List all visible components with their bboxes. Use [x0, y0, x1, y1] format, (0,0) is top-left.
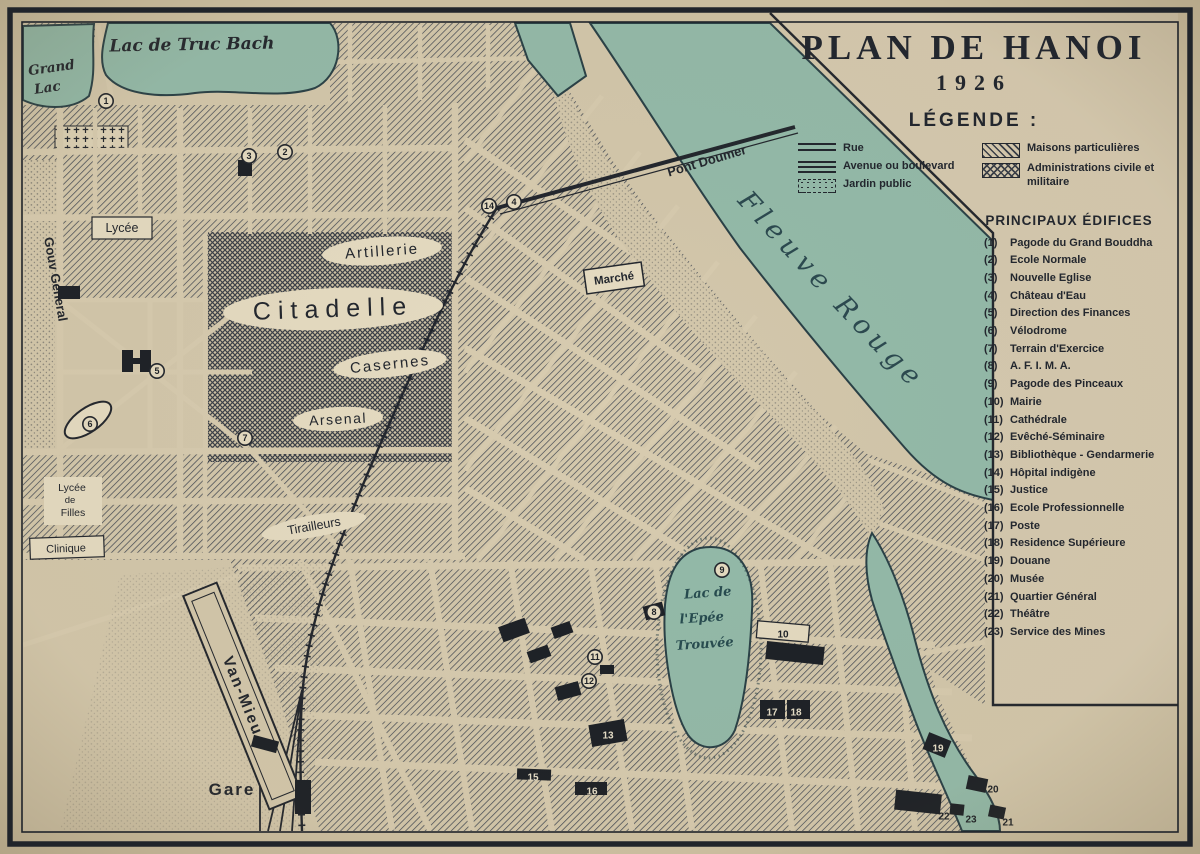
edifice-number: (5)	[984, 306, 1010, 321]
edifice-number: (20)	[984, 572, 1010, 587]
legend-item-label: Maisons particulières	[1027, 142, 1140, 156]
edifice-item-7: (7)Terrain d'Exercice	[984, 342, 1170, 357]
legend-item-maisons: Maisons particulières	[982, 142, 1166, 158]
avenue-symbol-icon	[798, 161, 836, 173]
edifice-number: (2)	[984, 253, 1010, 268]
edifice-item-5: (5)Direction des Finances	[984, 306, 1170, 321]
legend-item-label: Administrations civile et militaire	[1027, 162, 1166, 190]
edifice-number: (3)	[984, 271, 1010, 286]
edifice-number: (15)	[984, 483, 1010, 498]
legend-item-rue: Rue	[798, 142, 982, 156]
edifice-item-8: (8)A. F. I. M. A.	[984, 359, 1170, 374]
legend-item-label: Jardin public	[843, 178, 911, 192]
legend-item-label: Avenue ou boulevard	[843, 160, 954, 174]
legend-item-administrations: Administrations civile et militaire	[982, 162, 1166, 190]
administrations-symbol-icon	[982, 163, 1020, 178]
edifice-item-23: (23)Service des Mines	[984, 625, 1170, 640]
edifice-number: (18)	[984, 536, 1010, 551]
legend-item-jardin: Jardin public	[798, 178, 982, 193]
edifice-item-19: (19)Douane	[984, 554, 1170, 569]
edifice-number: (14)	[984, 466, 1010, 481]
legend-column-left: RueAvenue ou boulevardJardin public	[798, 142, 982, 197]
edifice-number: (12)	[984, 430, 1010, 445]
edifice-number: (17)	[984, 519, 1010, 534]
edifice-item-22: (22)Théâtre	[984, 607, 1170, 622]
edifices-list: (1)Pagode du Grand Bouddha(2)Ecole Norma…	[984, 236, 1170, 640]
edifice-item-13: (13)Bibliothèque - Gendarmerie	[984, 448, 1170, 463]
edifice-item-20: (20)Musée	[984, 572, 1170, 587]
map-title: PLAN DE HANOI	[772, 28, 1176, 68]
edifice-number: (8)	[984, 359, 1010, 374]
edifice-item-21: (21)Quartier Général	[984, 590, 1170, 605]
edifice-number: (13)	[984, 448, 1010, 463]
edifice-item-18: (18)Residence Supérieure	[984, 536, 1170, 551]
edifice-item-11: (11)Cathédrale	[984, 413, 1170, 428]
legend-panel: PLAN DE HANOI 1926 LÉGENDE : RueAvenue o…	[772, 16, 1176, 710]
edifice-number: (22)	[984, 607, 1010, 622]
map-year: 1926	[772, 70, 1176, 96]
edifice-item-12: (12)Evêché-Séminaire	[984, 430, 1170, 445]
edifice-number: (10)	[984, 395, 1010, 410]
jardin-symbol-icon	[798, 179, 836, 193]
edifice-number: (6)	[984, 324, 1010, 339]
edifices-section: PRINCIPAUX ÉDIFICES (1)Pagode du Grand B…	[984, 213, 1170, 640]
edifice-item-14: (14)Hôpital indigène	[984, 466, 1170, 481]
maisons-symbol-icon	[982, 143, 1020, 158]
legend-item-avenue: Avenue ou boulevard	[798, 160, 982, 174]
edifice-item-3: (3)Nouvelle Eglise	[984, 271, 1170, 286]
edifice-item-16: (16)Ecole Professionnelle	[984, 501, 1170, 516]
edifice-number: (21)	[984, 590, 1010, 605]
edifice-item-6: (6)Vélodrome	[984, 324, 1170, 339]
legend-column-right: Maisons particulièresAdministrations civ…	[982, 142, 1166, 197]
legend-grid: RueAvenue ou boulevardJardin public Mais…	[798, 142, 1166, 197]
edifice-item-2: (2)Ecole Normale	[984, 253, 1170, 268]
edifice-item-1: (1)Pagode du Grand Bouddha	[984, 236, 1170, 251]
edifice-number: (11)	[984, 413, 1010, 428]
edifice-item-17: (17)Poste	[984, 519, 1170, 534]
edifices-heading: PRINCIPAUX ÉDIFICES	[968, 213, 1170, 228]
rue-symbol-icon	[798, 143, 836, 151]
legend-heading: LÉGENDE :	[772, 110, 1176, 132]
edifice-number: (9)	[984, 377, 1010, 392]
edifice-number: (16)	[984, 501, 1010, 516]
edifice-number: (4)	[984, 289, 1010, 304]
edifice-number: (23)	[984, 625, 1010, 640]
hanoi-1926-map-page: Lac de Truc Bach Grand Lac Gouv General …	[0, 0, 1200, 854]
legend-item-label: Rue	[843, 142, 864, 156]
edifice-number: (19)	[984, 554, 1010, 569]
edifice-item-10: (10)Mairie	[984, 395, 1170, 410]
edifice-item-15: (15)Justice	[984, 483, 1170, 498]
edifice-number: (7)	[984, 342, 1010, 357]
edifice-number: (1)	[984, 236, 1010, 251]
edifice-item-4: (4)Château d'Eau	[984, 289, 1170, 304]
edifice-item-9: (9)Pagode des Pinceaux	[984, 377, 1170, 392]
